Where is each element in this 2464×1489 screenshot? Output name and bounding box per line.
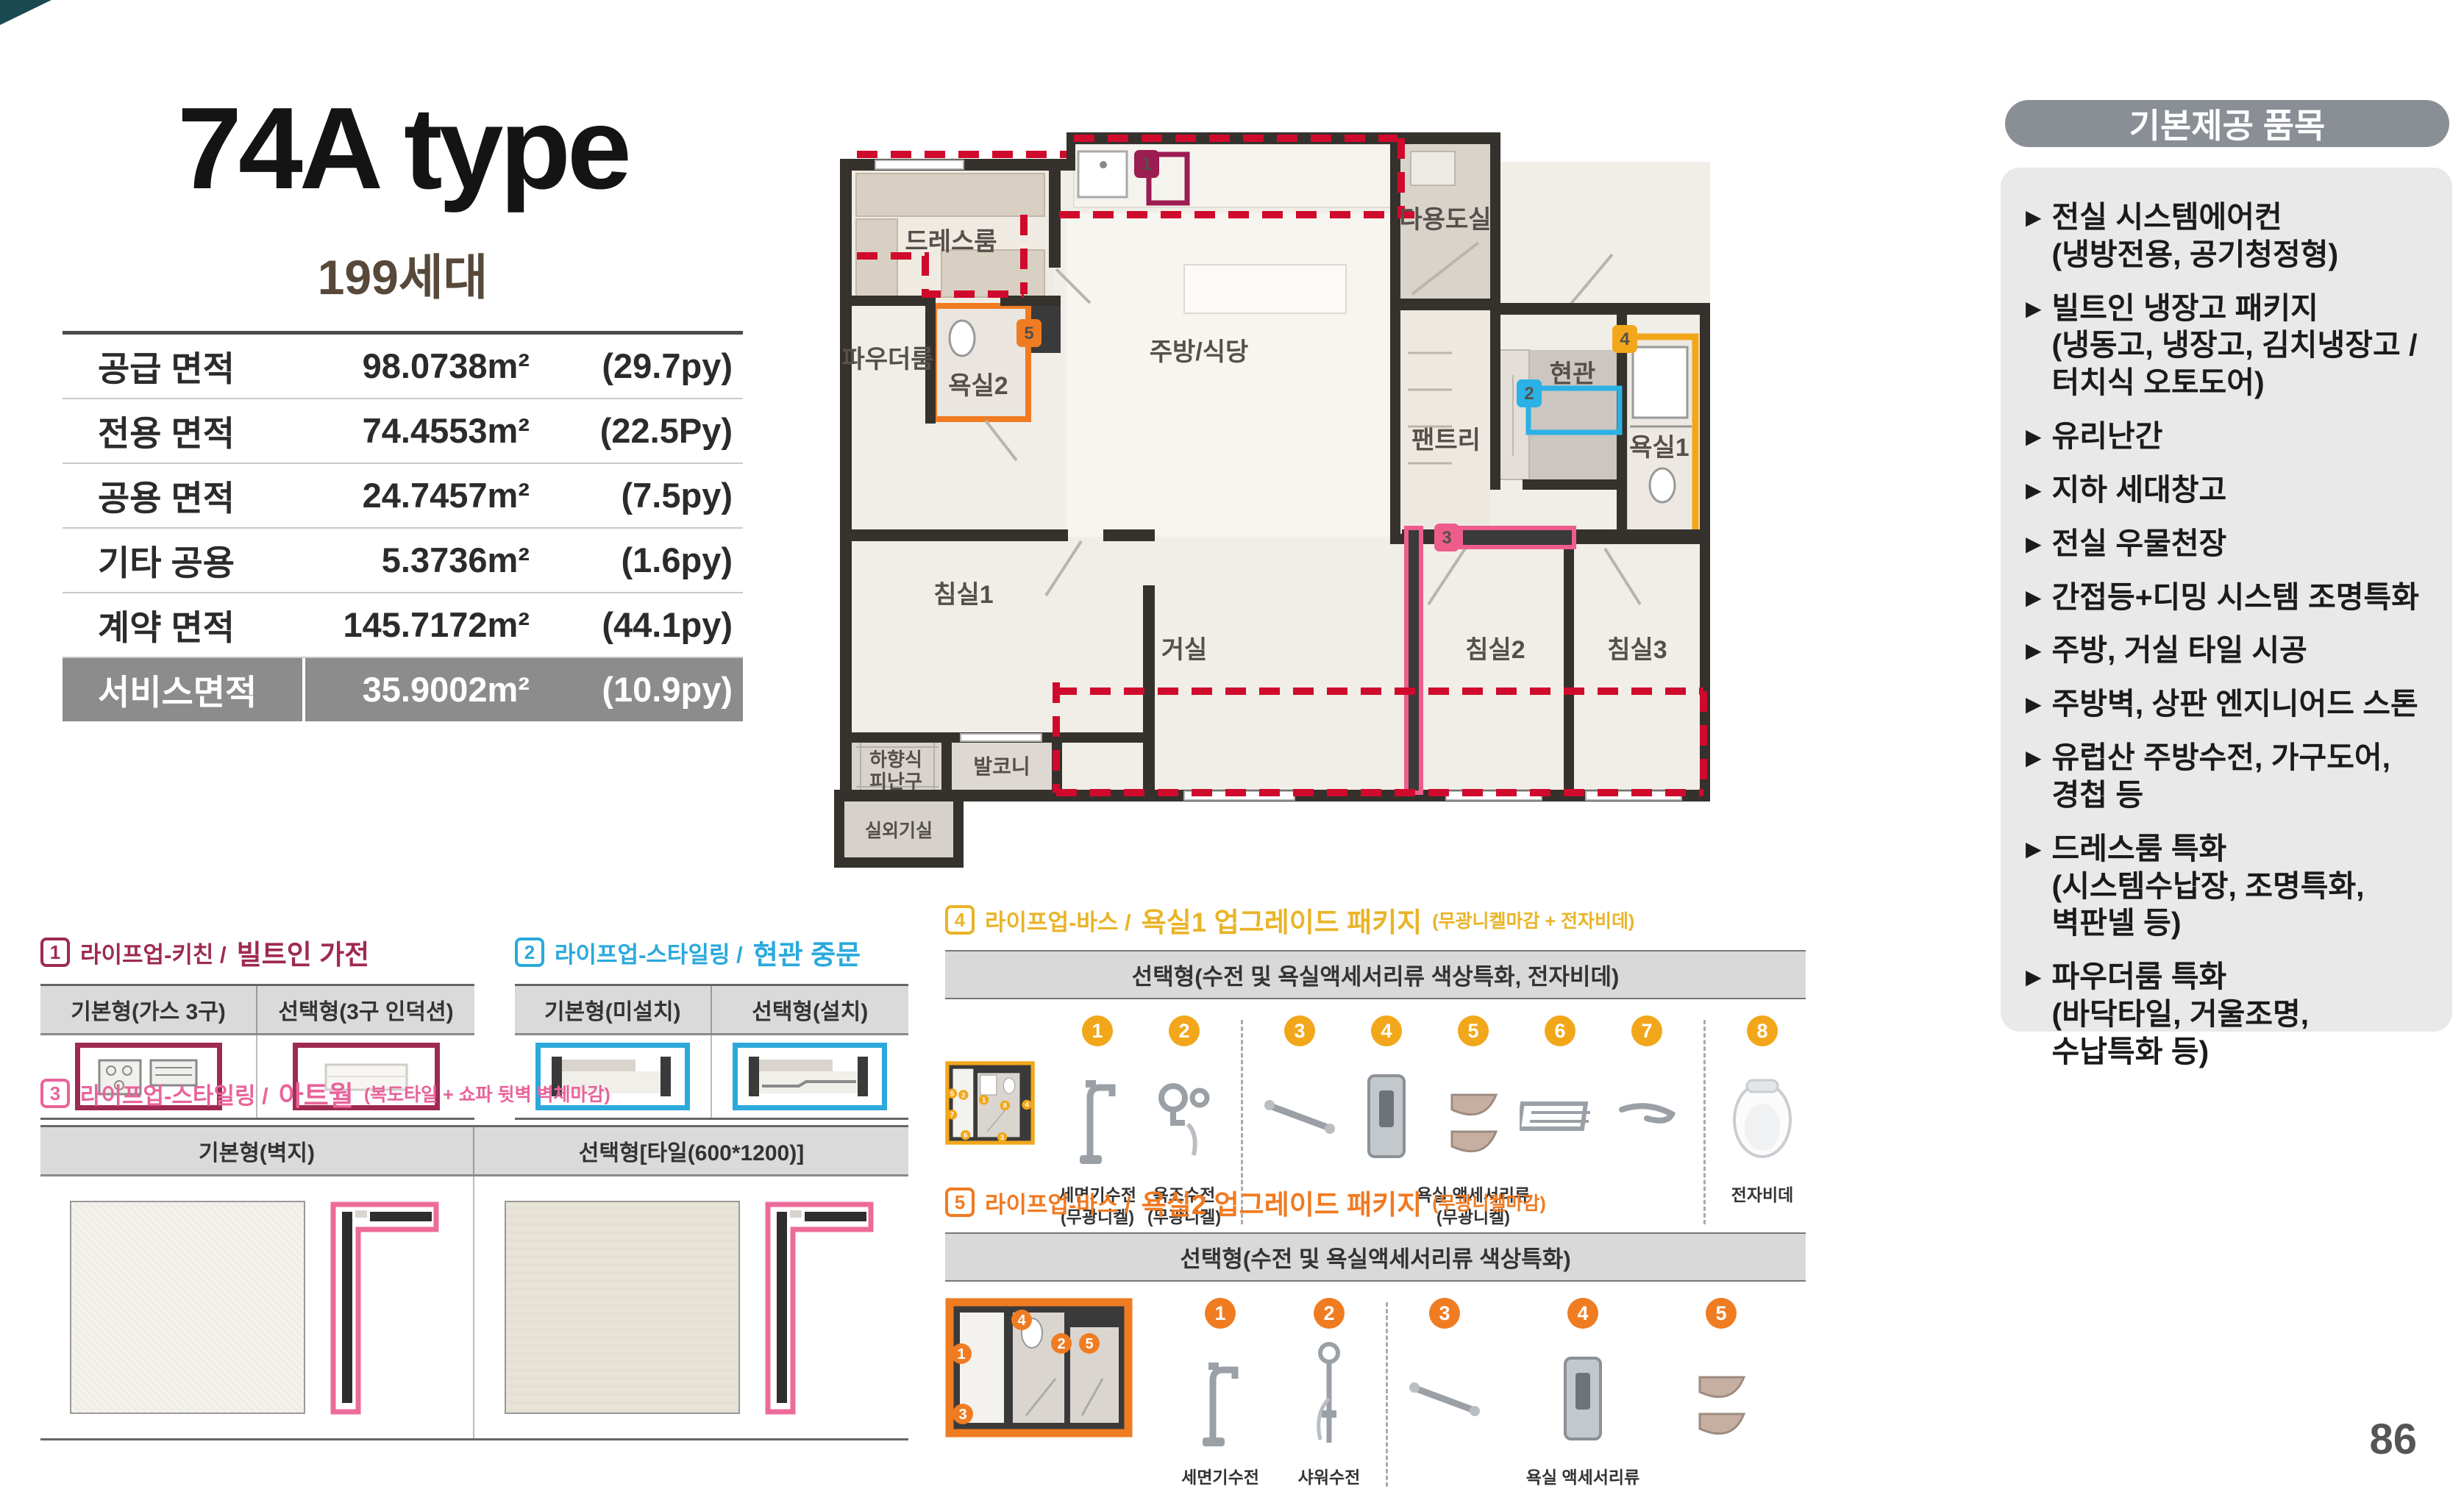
svg-text:5: 5 [950,1090,955,1098]
room-label-entrance: 현관 [1550,360,1596,388]
table-row: 공용 면적 24.7457m² (7.5py) [63,464,743,529]
option-number-badge: 2 [515,938,544,967]
product-robe-hook: 7 [1603,1015,1690,1179]
product-corner-shelf: 5 [1678,1298,1765,1461]
room-label-utility: 다용도실 [1399,206,1491,234]
column-header: 선택형[타일(600*1200)] [474,1127,908,1174]
option-number-badge: 4 [945,905,975,935]
bullet-triangle-icon: ▶ [2026,534,2042,563]
room-label-powderroom: 파우더룸 [841,346,933,374]
list-item: ▶빌트인 냉장고 패키지 (냉동고, 냉장고, 김치냉장고 / 터치식 오토도어… [2026,290,2432,401]
room-label-bath2: 욕실2 [948,372,1008,400]
room-label-bedroom2: 침실2 [1465,636,1525,664]
option-selection-bar: 선택형(수전 및 욕실액세서리류 색상특화, 전자비데) [945,950,1806,999]
row-value: 24.7457m² [305,475,530,515]
product-basin-faucet: 1 세면기수전 (무광니켈) [1177,1298,1264,1489]
corner-shelf-icon [1440,1061,1506,1171]
row-label: 서비스면적 [63,658,305,721]
tub-faucet-icon [1151,1061,1217,1171]
svg-text:3: 3 [1000,1134,1004,1142]
area-table: 공급 면적 98.0738m² (29.7py) 전용 면적 74.4553m²… [63,331,743,721]
bullet-triangle-icon: ▶ [2026,694,2042,723]
column-header: 기본형(벽지) [40,1127,474,1174]
brochure-page: 74A type 199세대 공급 면적 98.0738m² (29.7py) … [0,0,2464,1489]
product-towel-bar: 3 [1401,1298,1488,1461]
table-row-service-area: 서비스면적 35.9002m² (10.9py) [63,658,743,721]
option-number-badge: 5 [945,1188,975,1217]
room-label-ac-room: 실외기실 [865,821,933,841]
row-label: 기타 공용 [63,535,305,585]
room-label-bedroom3: 침실3 [1607,636,1667,664]
room-label-bath1: 욕실1 [1629,434,1689,462]
column-header: 선택형(3구 인덕션) [257,986,474,1033]
svg-text:7: 7 [950,1111,954,1119]
included-items-header: 기본제공 품목 [2005,100,2449,147]
column-header: 선택형(설치) [712,986,909,1033]
room-label-pantry: 팬트리 [1411,426,1481,454]
bullet-triangle-icon: ▶ [2026,480,2042,509]
row-pyeong: (10.9py) [530,669,743,710]
towel-bar-icon [1404,1343,1485,1454]
room-label-kitchen: 주방/식당 [1150,338,1249,366]
option-table: 기본형(벽지) 선택형[타일(600*1200)] [40,1125,908,1440]
svg-text:4: 4 [1025,1101,1029,1110]
row-pyeong: (44.1py) [530,604,743,645]
room-label-escape-hatch-1: 하향식 [869,749,922,771]
list-item: ▶주방벽, 상판 엔지니어드 스톤 [2026,685,2432,723]
kitchen-sink [1078,151,1127,197]
row-value: 98.0738m² [305,346,530,386]
tile-swatch [505,1201,740,1414]
list-item: ▶간접등+디밍 시스템 조명특화 [2026,579,2432,616]
floor-plan: 드레스룸 파우더룸 욕실2 주방/식당 다용도실 팬트리 현관 욕실1 침실1 … [831,132,1725,882]
towel-rack-icon [1520,1061,1600,1171]
section-title: 1 라이프업-키친 / 빌트인 가전 [40,932,474,972]
basin-faucet-icon [1068,1061,1127,1171]
towel-bar-icon [1259,1061,1340,1171]
list-item: ▶드레스룸 특화 (시스템수납장, 조명특화, 벽판넬 등) [2026,830,2432,942]
row-value: 74.4553m² [305,410,530,451]
svg-text:3: 3 [958,1407,966,1423]
row-pyeong: (1.6py) [530,540,743,580]
unit-summary: 74A type 199세대 공급 면적 98.0738m² (29.7py) … [63,88,743,721]
artwall-diagram-basic [326,1197,444,1418]
pantry-floor [1400,309,1490,534]
svg-text:2: 2 [961,1091,965,1099]
room-label-living: 거실 [1161,636,1208,664]
bath1-plan-image: 1 2 3 4 5 6 7 8 [945,1015,1035,1190]
row-pyeong: (7.5py) [530,475,743,515]
svg-text:2: 2 [1057,1336,1065,1352]
badge-2: 2 [1524,384,1534,404]
svg-text:6: 6 [964,1132,967,1140]
section-title: 2 라이프업-스타일링 / 현관 중문 [515,932,908,972]
bath2-highlight-box [934,306,1028,419]
product-towel-bar: 3 [1256,1015,1343,1179]
option-section-bath2: 5 라이프업-바스 / 욕실2 업그레이드 패키지 (무광니켈마감) 선택형(수… [945,1182,1806,1489]
svg-text:8: 8 [1003,1102,1008,1110]
room-label-dressroom: 드레스룸 [905,228,997,256]
list-item: ▶파우더룸 특화 (바닥타일, 거울조명, 수납특화 등) [2026,958,2432,1070]
group-label: 욕실 액세서리류 (무광니켈) [1526,1467,1640,1489]
bullet-triangle-icon: ▶ [2026,748,2042,814]
section-title: 4 라이프업-바스 / 욕실1 업그레이드 패키지 (무광니켈마감 + 전자비데… [945,900,1806,940]
list-item: ▶유리난간 [2026,418,2432,455]
column-header: 기본형(미설치) [515,986,712,1033]
product-control-panel: 4 [1539,1298,1626,1461]
option-section-artwall: 3 라이프업-스타일링 / 아트월 (복도타일 + 쇼파 뒷벽 벽체마감) 기본… [40,1074,908,1440]
control-panel-icon [1553,1343,1612,1454]
divider [1386,1302,1388,1489]
product-accessory-group: 3 4 [1401,1298,1765,1489]
row-pyeong: (22.5Py) [530,410,743,451]
badge-5: 5 [1024,324,1033,343]
section-title: 5 라이프업-바스 / 욕실2 업그레이드 패키지 (무광니켈마감) [945,1182,1806,1222]
section-title: 3 라이프업-스타일링 / 아트월 (복도타일 + 쇼파 뒷벽 벽체마감) [40,1074,908,1113]
bullet-triangle-icon: ▶ [2026,839,2042,942]
row-value: 35.9002m² [305,669,530,710]
shower-faucet-icon [1300,1340,1359,1457]
room-label-balcony: 발코니 [973,755,1030,778]
included-items-panel: ▶전실 시스템에어컨 (냉방전용, 공기청정형) ▶빌트인 냉장고 패키지 (냉… [2001,168,2452,1032]
robe-hook-icon [1610,1061,1684,1171]
table-row: 공급 면적 98.0738m² (29.7py) [63,335,743,399]
room-label-bedroom1: 침실1 [933,581,993,609]
product-shower-faucet: 2 샤워수전 (무광니켈) [1286,1298,1372,1489]
badge-1: 1 [1142,154,1151,174]
list-item: ▶지하 세대창고 [2026,471,2432,509]
bullet-triangle-icon: ▶ [2026,640,2042,669]
bath2-plan-image: 1 2 3 4 5 [945,1298,1133,1438]
list-item: ▶유럽산 주방수전, 가구도어, 경첩 등 [2026,739,2432,814]
list-item: ▶전실 우물천장 [2026,525,2432,563]
badge-4: 4 [1620,329,1630,349]
corner-decoration [0,0,51,25]
bullet-triangle-icon: ▶ [2026,299,2042,401]
page-number: 86 [2369,1415,2417,1464]
artwall-diagram-tile [761,1197,878,1418]
row-label: 전용 면적 [63,405,305,456]
kitchen-island [1184,265,1346,313]
row-label: 공용 면적 [63,470,305,521]
page-title: 74A type [63,88,743,210]
row-pyeong: (29.7py) [530,346,743,386]
svg-text:4: 4 [1017,1313,1026,1329]
option-number-badge: 1 [40,938,70,967]
product-control-panel: 4 [1343,1015,1430,1179]
bidet-icon [1722,1061,1803,1171]
option-section-bath1: 4 라이프업-바스 / 욕실1 업그레이드 패키지 (무광니켈마감 + 전자비데… [945,900,1806,1229]
row-label: 계약 면적 [63,599,305,650]
bullet-triangle-icon: ▶ [2026,967,2042,1070]
option-selection-bar: 선택형(수전 및 욕실액세서리류 색상특화) [945,1232,1806,1282]
room-label-escape-hatch-2: 피난구 [869,771,922,793]
table-row: 전용 면적 74.4553m² (22.5Py) [63,399,743,464]
list-item: ▶전실 시스템에어컨 (냉방전용, 공기청정형) [2026,199,2432,274]
bullet-triangle-icon: ▶ [2026,588,2042,616]
floor-plan-drawing: 드레스룸 파우더룸 욕실2 주방/식당 다용도실 팬트리 현관 욕실1 침실1 … [831,132,1725,882]
households-count: 199세대 [63,238,743,309]
table-row: 기타 공용 5.3736m² (1.6py) [63,529,743,593]
option-number-badge: 3 [40,1079,70,1108]
svg-text:1: 1 [982,1096,986,1104]
list-item: ▶주방, 거실 타일 시공 [2026,632,2432,669]
column-header: 기본형(가스 3구) [40,986,257,1033]
badge-3: 3 [1442,528,1451,548]
svg-text:1: 1 [957,1346,965,1363]
table-row: 계약 면적 145.7172m² (44.1py) [63,593,743,658]
corner-shelf-icon [1688,1343,1754,1454]
row-label: 공급 면적 [63,340,305,391]
basin-faucet-icon [1191,1343,1250,1454]
bullet-triangle-icon: ▶ [2026,207,2042,274]
product-corner-shelf: 5 [1430,1015,1517,1179]
control-panel-icon [1357,1061,1416,1171]
bullet-triangle-icon: ▶ [2026,426,2042,455]
product-towel-rack: 6 [1517,1015,1603,1179]
row-value: 5.3736m² [305,540,530,580]
svg-text:5: 5 [1085,1336,1093,1352]
wallpaper-swatch [70,1201,305,1414]
row-value: 145.7172m² [305,604,530,645]
